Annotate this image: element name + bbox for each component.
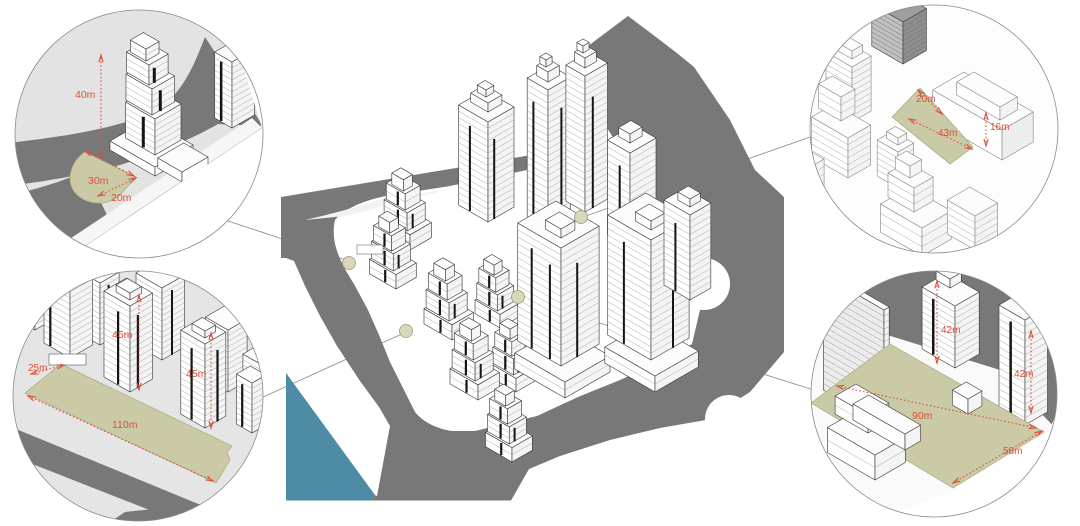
svg-text:110m: 110m (112, 419, 138, 431)
svg-text:45m: 45m (112, 329, 133, 341)
svg-text:45m: 45m (186, 368, 207, 380)
svg-text:25m: 25m (28, 363, 47, 374)
svg-text:30m: 30m (88, 175, 109, 187)
svg-text:40m: 40m (75, 89, 96, 101)
svg-text:90m: 90m (912, 410, 933, 422)
svg-text:20m: 20m (111, 192, 132, 204)
svg-text:42m: 42m (1014, 369, 1033, 380)
svg-text:42m: 42m (941, 325, 960, 336)
svg-text:20m: 20m (916, 94, 935, 105)
svg-text:58m: 58m (1003, 446, 1022, 457)
svg-text:16m: 16m (990, 122, 1009, 133)
svg-text:43m: 43m (938, 128, 957, 139)
